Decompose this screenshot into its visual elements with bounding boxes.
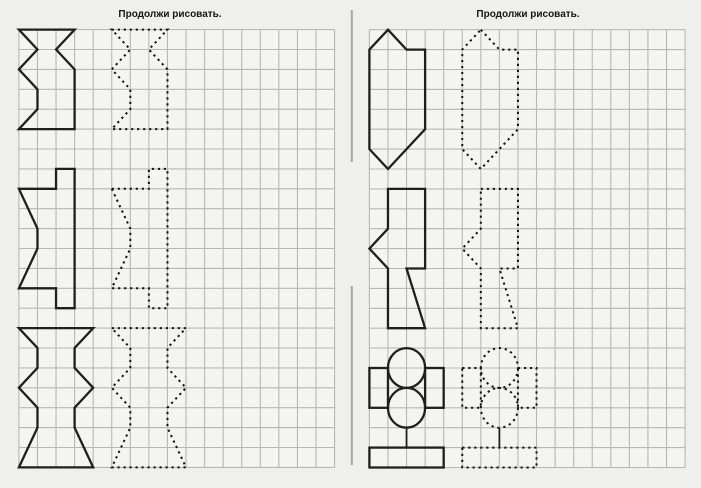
svg-text:Продолжи рисовать.: Продолжи рисовать. <box>476 9 579 20</box>
svg-text:Продолжи рисовать.: Продолжи рисовать. <box>118 9 221 20</box>
